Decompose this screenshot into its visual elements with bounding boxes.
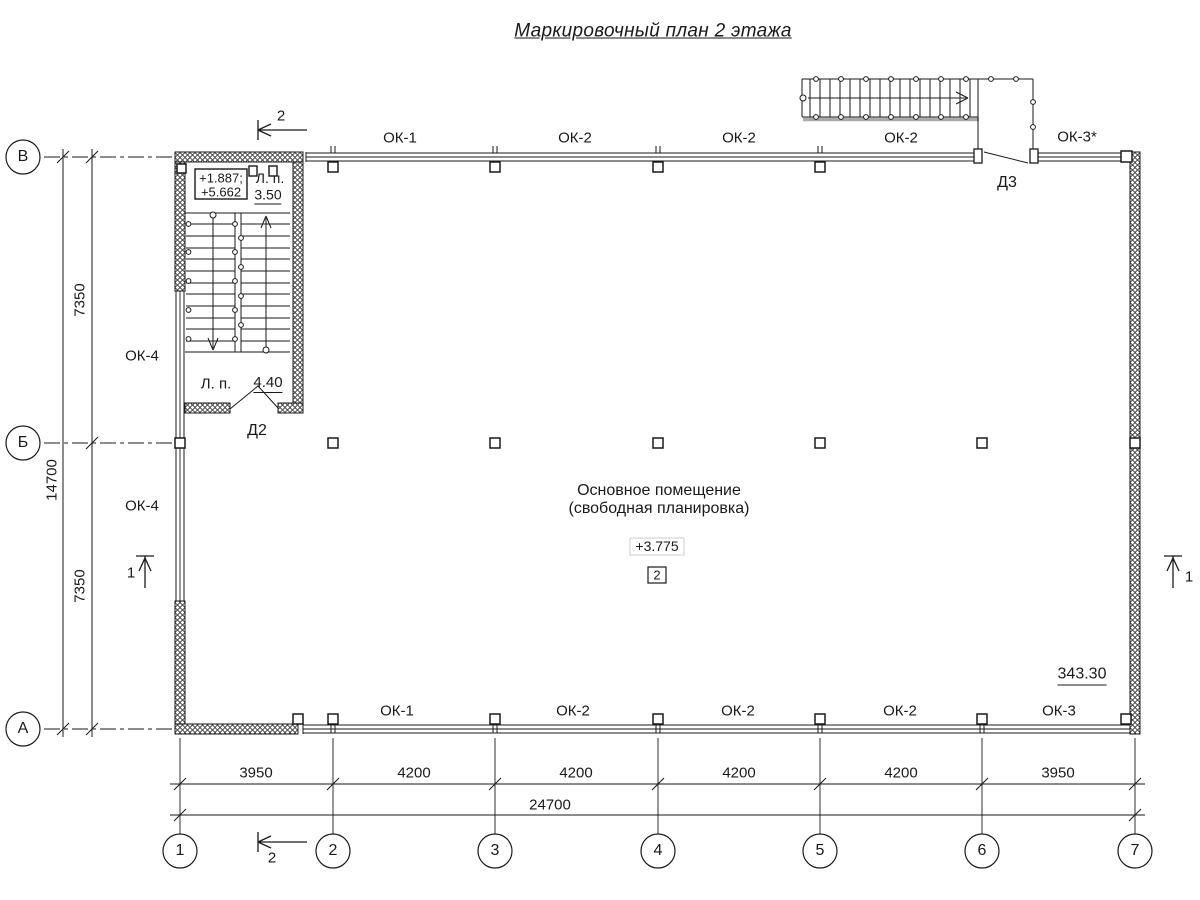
dim-1-2: 3950 bbox=[239, 766, 272, 781]
section-mark-2-top: 2 bbox=[277, 109, 285, 124]
door-mark-d3: Д3 bbox=[997, 175, 1017, 191]
axis-label-6: 6 bbox=[978, 843, 987, 859]
drawing-title: Маркировочный план 2 этажа bbox=[514, 22, 791, 41]
room-name-line1: Основное помещение bbox=[577, 483, 741, 499]
section-mark-1-right: 1 bbox=[1185, 570, 1193, 585]
door-d3 bbox=[974, 149, 1038, 163]
room-area: 343.30 bbox=[1058, 667, 1107, 686]
landing-bottom-label: Л. п. bbox=[201, 377, 231, 392]
landing-top-value: 3.50 bbox=[254, 188, 281, 205]
room-number: 2 bbox=[653, 569, 660, 582]
axis-label-1: 1 bbox=[176, 843, 185, 859]
dim-3-4: 4200 bbox=[559, 766, 592, 781]
window-mark-left-2: ОК-4 bbox=[125, 499, 159, 514]
axis-label-7: 7 bbox=[1131, 843, 1140, 859]
stair-elevation-line1: +1.887; bbox=[199, 172, 243, 185]
landing-bottom-value: 4.40 bbox=[253, 375, 282, 393]
section-mark-1-left: 1 bbox=[127, 566, 135, 581]
dim-5-6: 4200 bbox=[884, 766, 917, 781]
axis-label-2: 2 bbox=[329, 843, 338, 859]
floor-plan-sheet: Маркировочный план 2 этажа В Б А 1 2 3 4… bbox=[0, 0, 1200, 900]
window-mark-top-5: ОК-3* bbox=[1057, 130, 1097, 145]
axis-label-3: 3 bbox=[491, 843, 500, 859]
axis-label-5: 5 bbox=[816, 843, 825, 859]
window-mark-top-4: ОК-2 bbox=[884, 131, 918, 146]
window-mark-top-2: ОК-2 bbox=[558, 131, 592, 146]
window-mark-top-1: ОК-1 bbox=[383, 131, 417, 146]
axis-label-a: А bbox=[18, 721, 29, 737]
door-mark-d2: Д2 bbox=[247, 423, 267, 439]
room-elevation: +3.775 bbox=[635, 539, 678, 553]
window-mark-bottom-3: ОК-2 bbox=[721, 704, 755, 719]
floor-plan-drawing bbox=[0, 0, 1200, 900]
window-mark-top-3: ОК-2 bbox=[722, 131, 756, 146]
dim-6-7: 3950 bbox=[1041, 766, 1074, 781]
axis-label-v: В bbox=[18, 149, 29, 165]
axis-label-4: 4 bbox=[654, 843, 663, 859]
axis-label-b: Б bbox=[18, 435, 29, 451]
dim-v-b: 7350 bbox=[73, 283, 88, 316]
stair-elevation-line2: +5.662 bbox=[201, 186, 241, 199]
room-name-line2: (свободная планировка) bbox=[569, 501, 750, 517]
window-mark-bottom-4: ОК-2 bbox=[883, 704, 917, 719]
dim-4-5: 4200 bbox=[722, 766, 755, 781]
landing-top-label: Л. п. bbox=[256, 171, 284, 185]
dim-b-a: 7350 bbox=[73, 569, 88, 602]
window-mark-bottom-1: ОК-1 bbox=[380, 704, 414, 719]
window-mark-bottom-2: ОК-2 bbox=[556, 704, 590, 719]
columns bbox=[175, 151, 1140, 724]
dim-2-3: 4200 bbox=[397, 766, 430, 781]
dim-total-width: 24700 bbox=[529, 798, 571, 813]
section-mark-2-bottom: 2 bbox=[268, 851, 276, 866]
window-mark-bottom-5: ОК-3 bbox=[1042, 704, 1076, 719]
window-mark-left-1: ОК-4 bbox=[125, 349, 159, 364]
dim-total-height: 14700 bbox=[45, 459, 60, 501]
